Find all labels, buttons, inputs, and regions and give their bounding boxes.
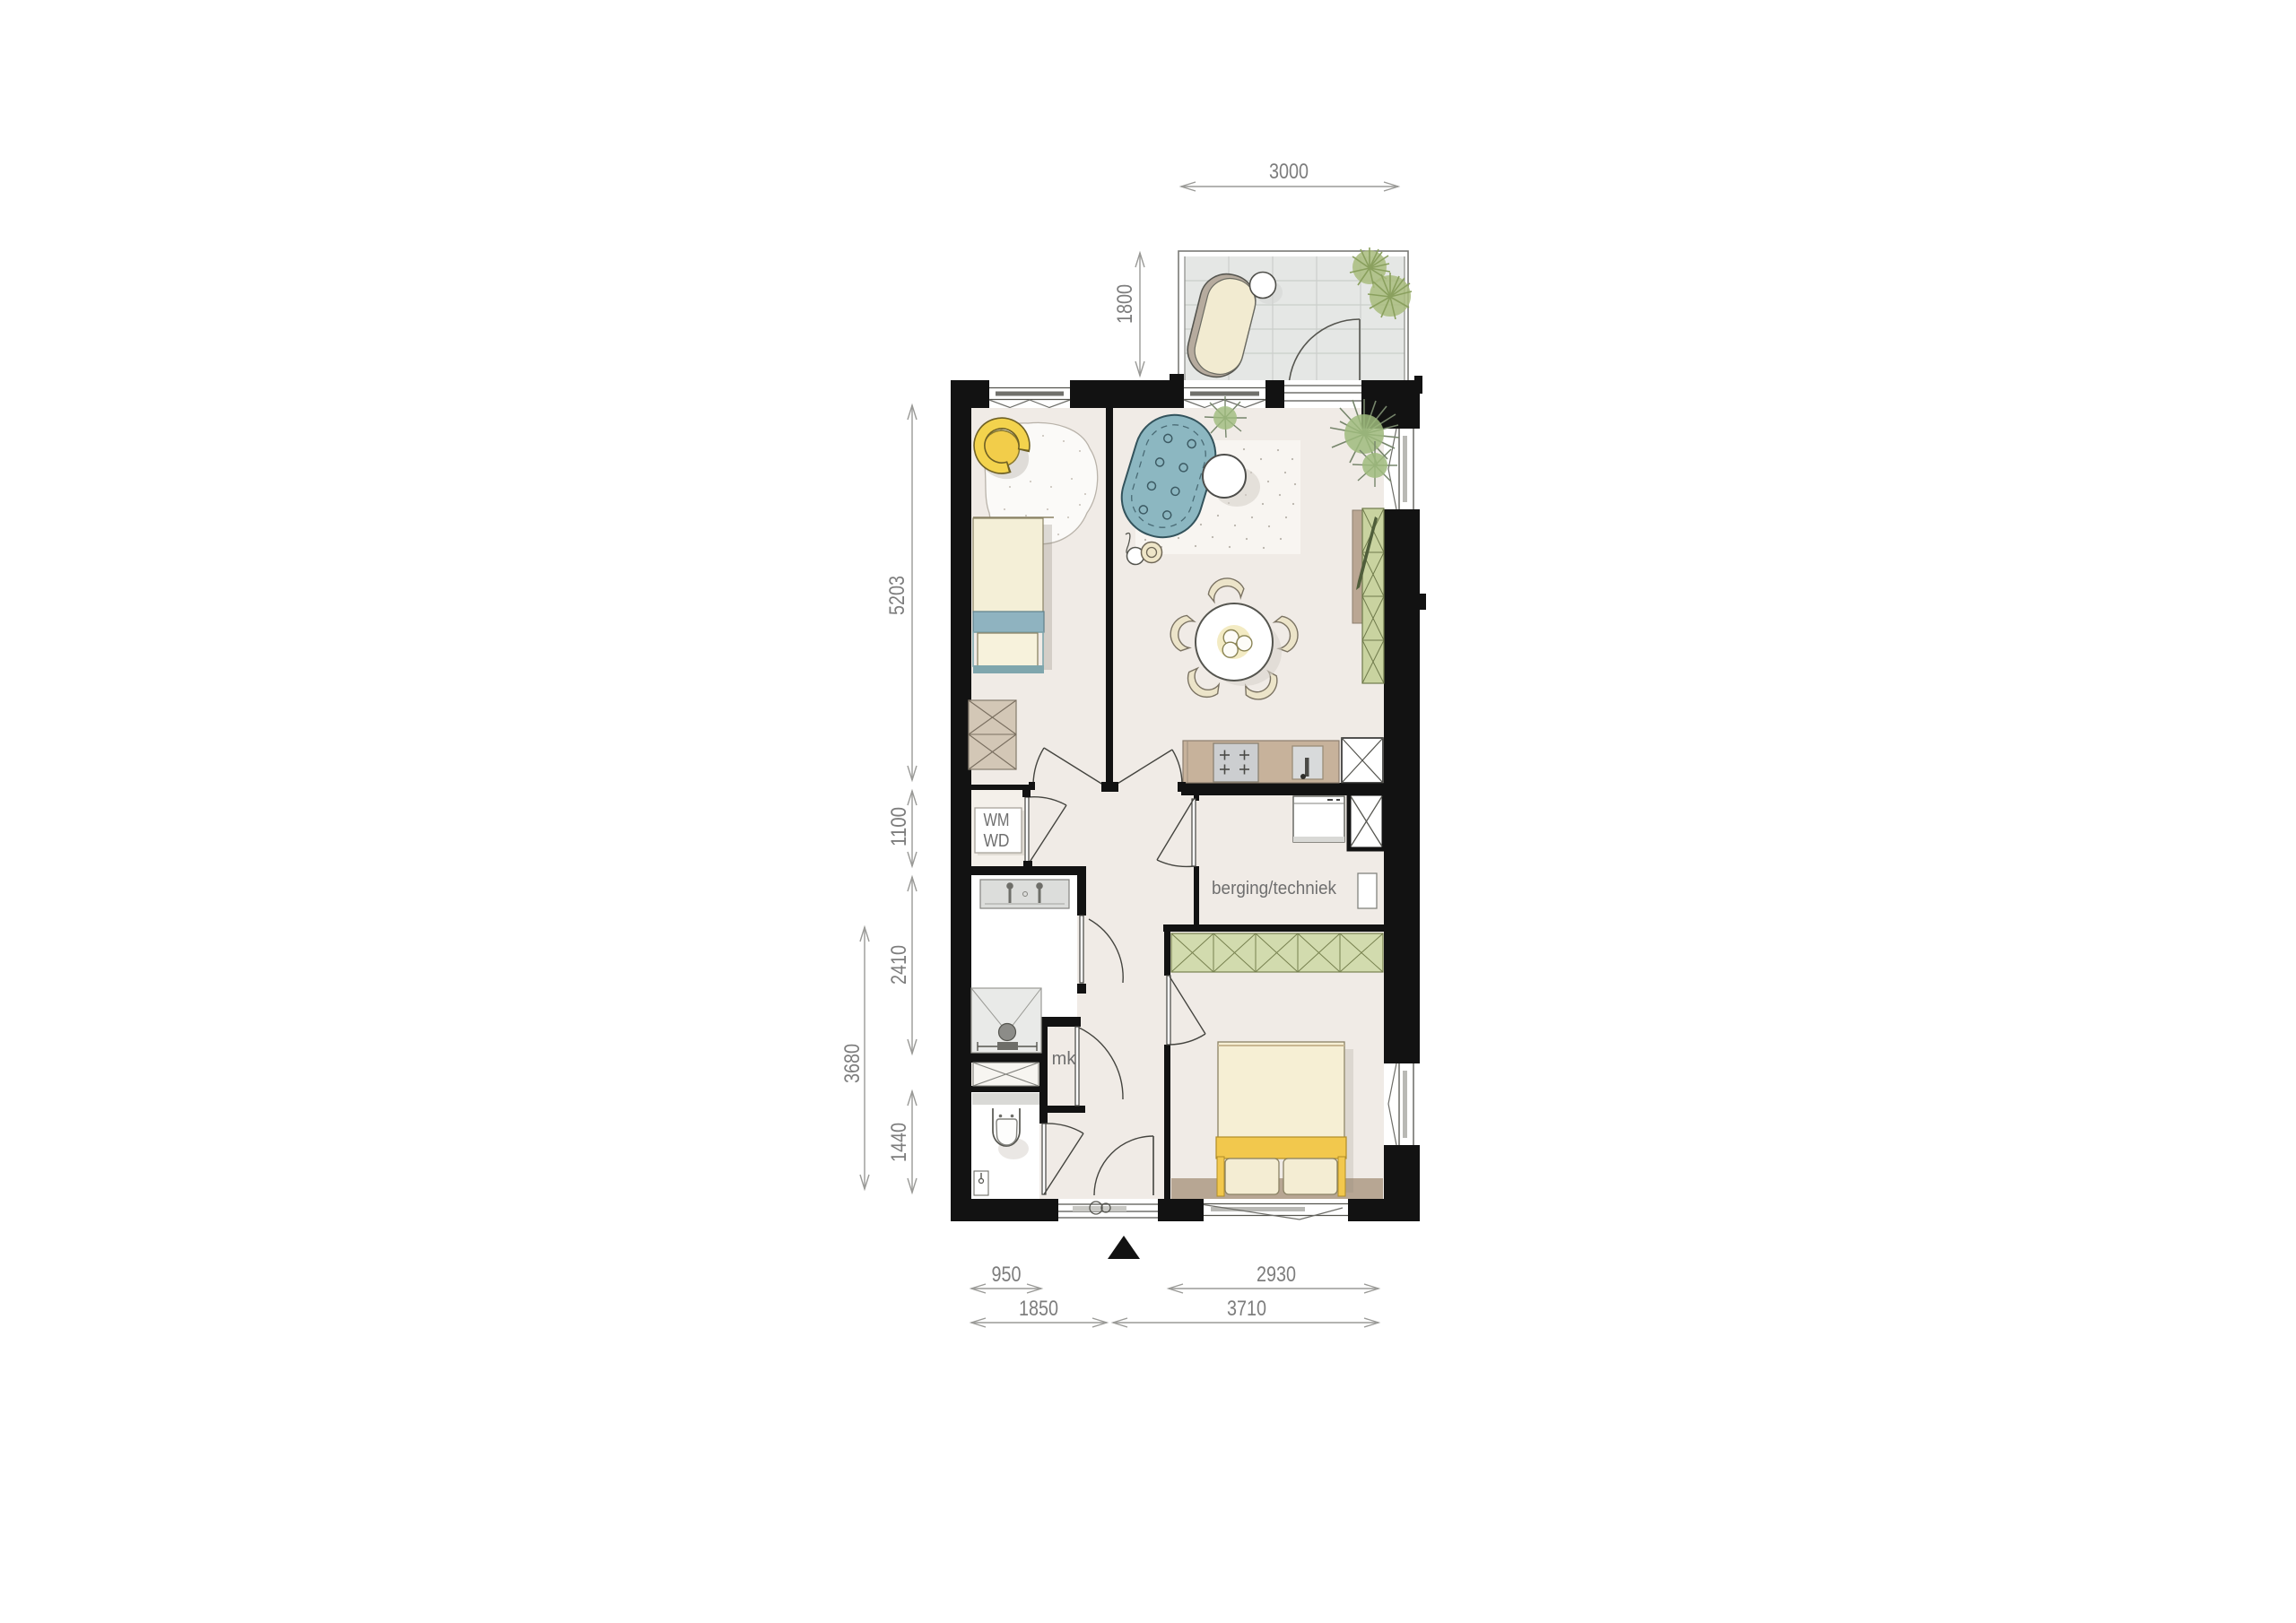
svg-text:1100: 1100 bbox=[887, 807, 911, 846]
svg-text:2930: 2930 bbox=[1257, 1263, 1296, 1287]
svg-text:WD: WD bbox=[984, 831, 1010, 851]
svg-text:mk: mk bbox=[1052, 1049, 1077, 1069]
svg-text:950: 950 bbox=[992, 1263, 1022, 1287]
svg-text:3680: 3680 bbox=[840, 1044, 865, 1083]
svg-text:berging/techniek: berging/techniek bbox=[1212, 879, 1337, 898]
svg-text:1440: 1440 bbox=[887, 1123, 911, 1162]
svg-text:5203: 5203 bbox=[885, 576, 909, 615]
svg-text:2410: 2410 bbox=[887, 945, 911, 985]
svg-text:3710: 3710 bbox=[1227, 1297, 1266, 1321]
svg-text:1800: 1800 bbox=[1113, 284, 1137, 324]
svg-text:3000: 3000 bbox=[1269, 160, 1309, 184]
svg-text:WM: WM bbox=[984, 811, 1010, 830]
svg-text:1850: 1850 bbox=[1019, 1297, 1058, 1321]
